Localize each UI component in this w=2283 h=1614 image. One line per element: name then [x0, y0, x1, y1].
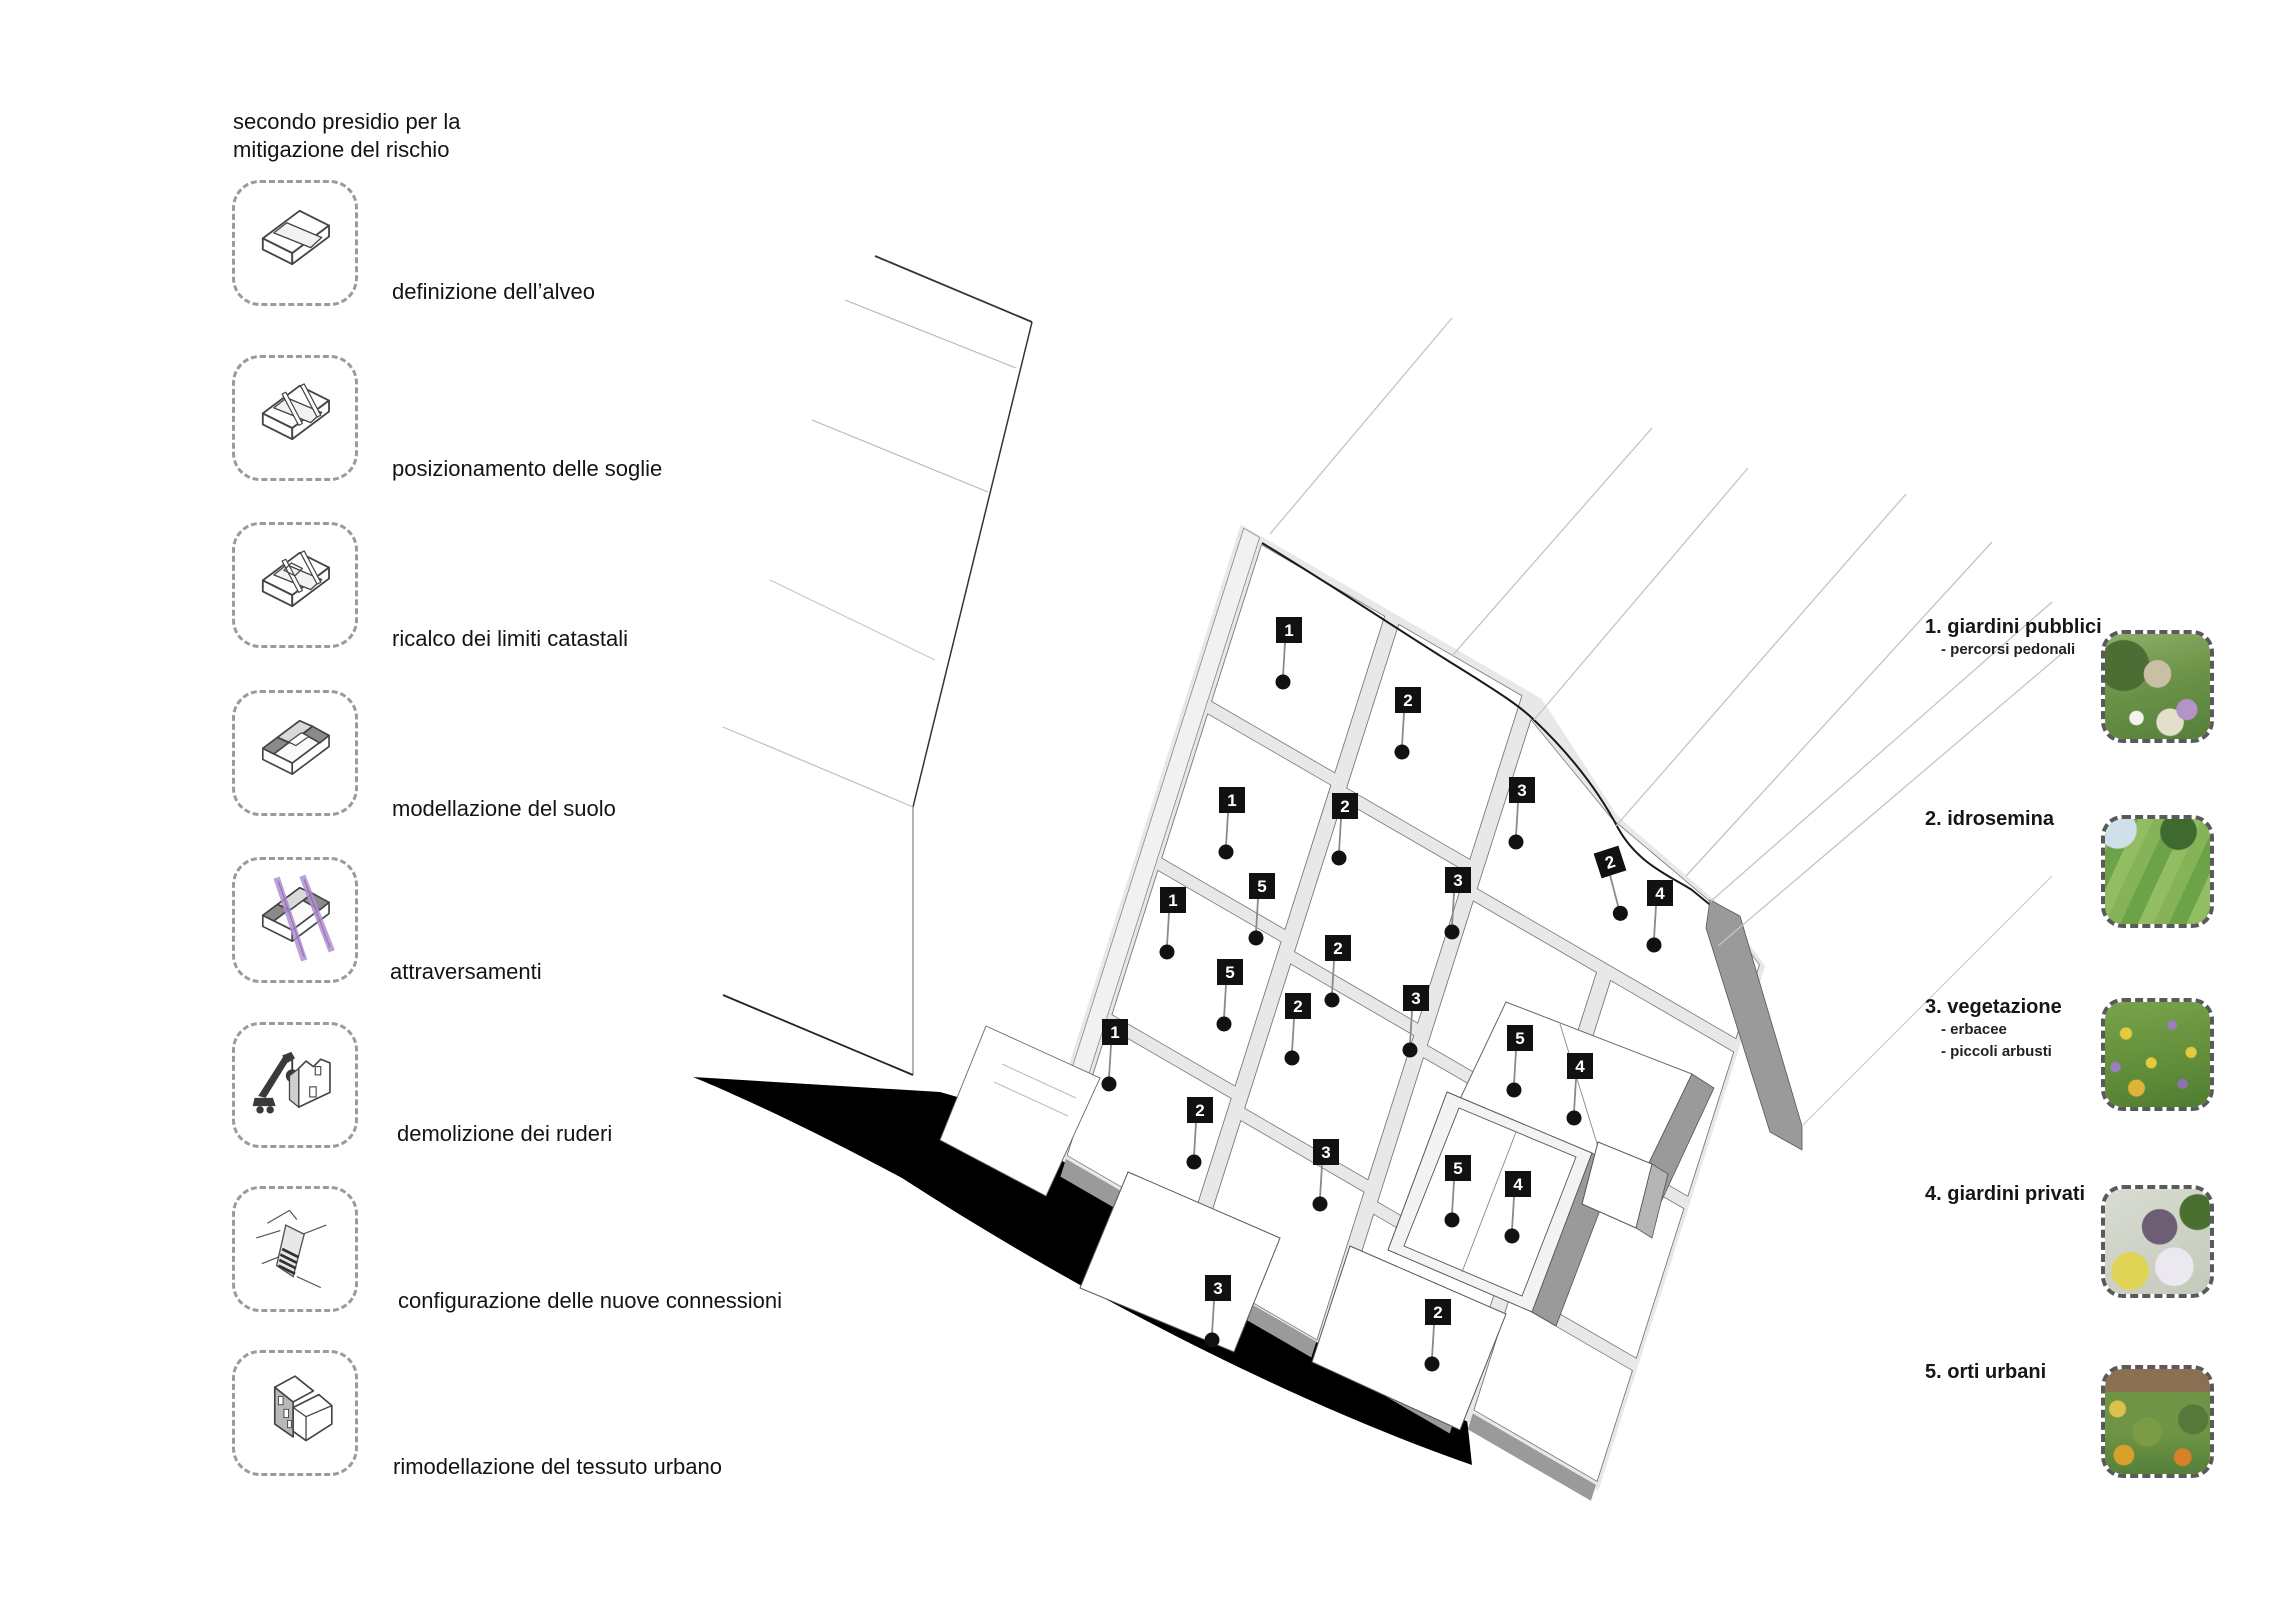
tag-number: 5 — [1515, 1029, 1524, 1048]
legend-item-sublabel: - percorsi pedonali — [1925, 639, 2102, 661]
tag-number: 2 — [1340, 797, 1349, 816]
photo-image — [2105, 819, 2210, 924]
legend-item-1: 1. giardini pubblici- percorsi pedonali — [1925, 616, 2102, 661]
photo-image — [2105, 1002, 2210, 1107]
tag-number: 3 — [1213, 1279, 1222, 1298]
legend-item-label: 3. vegetazione — [1925, 996, 2062, 1019]
tag-anchor-dot — [1395, 745, 1410, 760]
tag-anchor-dot — [1285, 1051, 1300, 1066]
legend-item-sublabel: - piccoli arbusti — [1925, 1041, 2062, 1063]
tag-number: 2 — [1433, 1303, 1442, 1322]
legend-item-2: 2. idrosemina — [1925, 808, 2054, 831]
tag-anchor-dot — [1102, 1077, 1117, 1092]
tag-number: 5 — [1453, 1159, 1462, 1178]
legend-item-label: 4. giardini privati — [1925, 1183, 2085, 1206]
tag-number: 2 — [1333, 939, 1342, 958]
tag-anchor-dot — [1567, 1111, 1582, 1126]
private-garden-photo — [2101, 1185, 2214, 1298]
tag-anchor-dot — [1647, 938, 1662, 953]
tag-number: 2 — [1195, 1101, 1204, 1120]
tag-anchor-dot — [1313, 1197, 1328, 1212]
tag-anchor-dot — [1445, 1213, 1460, 1228]
legend-item-4: 4. giardini privati — [1925, 1183, 2085, 1206]
photo-image — [2105, 1369, 2210, 1474]
tag-number: 5 — [1257, 877, 1266, 896]
tag-number: 3 — [1517, 781, 1526, 800]
tag-number: 3 — [1411, 989, 1420, 1008]
tag-number: 1 — [1227, 791, 1236, 810]
tag-number: 1 — [1110, 1023, 1119, 1042]
tag-anchor-dot — [1332, 851, 1347, 866]
legend-item-5: 5. orti urbani — [1925, 1361, 2046, 1384]
tag-number: 3 — [1321, 1143, 1330, 1162]
tag-anchor-dot — [1205, 1333, 1220, 1348]
tag-anchor-dot — [1403, 1043, 1418, 1058]
tag-number: 4 — [1655, 884, 1665, 903]
public-garden-photo — [2101, 630, 2214, 743]
tag-anchor-dot — [1445, 925, 1460, 940]
tag-number: 2 — [1293, 997, 1302, 1016]
tag-anchor-dot — [1509, 835, 1524, 850]
tag-anchor-dot — [1217, 1017, 1232, 1032]
photo-image — [2105, 1189, 2210, 1294]
cliff-slope-outline — [723, 256, 1032, 1075]
legend-item-sublabel: - erbacee — [1925, 1019, 2062, 1041]
tag-anchor-dot — [1219, 845, 1234, 860]
tag-number: 1 — [1168, 891, 1177, 910]
tag-number: 4 — [1513, 1175, 1523, 1194]
tag-anchor-dot — [1325, 993, 1340, 1008]
photo-image — [2105, 634, 2210, 739]
legend-item-label: 2. idrosemina — [1925, 808, 2054, 831]
legend-item-label: 5. orti urbani — [1925, 1361, 2046, 1384]
tag-anchor-dot — [1249, 931, 1264, 946]
wildflower-meadow-photo — [2101, 998, 2214, 1111]
urban-vegetable-garden-photo — [2101, 1365, 2214, 1478]
legend-item-3: 3. vegetazione- erbacee- piccoli arbusti — [1925, 996, 2062, 1063]
tag-anchor-dot — [1187, 1155, 1202, 1170]
legend-item-label: 1. giardini pubblici — [1925, 616, 2102, 639]
tag-number: 2 — [1403, 691, 1412, 710]
tag-number: 1 — [1284, 621, 1293, 640]
tag-number: 4 — [1575, 1057, 1585, 1076]
tag-anchor-dot — [1425, 1357, 1440, 1372]
tag-anchor-dot — [1505, 1229, 1520, 1244]
tag-anchor-dot — [1276, 675, 1291, 690]
hydroseeding-photo — [2101, 815, 2214, 928]
tag-anchor-dot — [1507, 1083, 1522, 1098]
tag-anchor-dot — [1160, 945, 1175, 960]
tag-number: 5 — [1225, 963, 1234, 982]
tag-number: 3 — [1453, 871, 1462, 890]
